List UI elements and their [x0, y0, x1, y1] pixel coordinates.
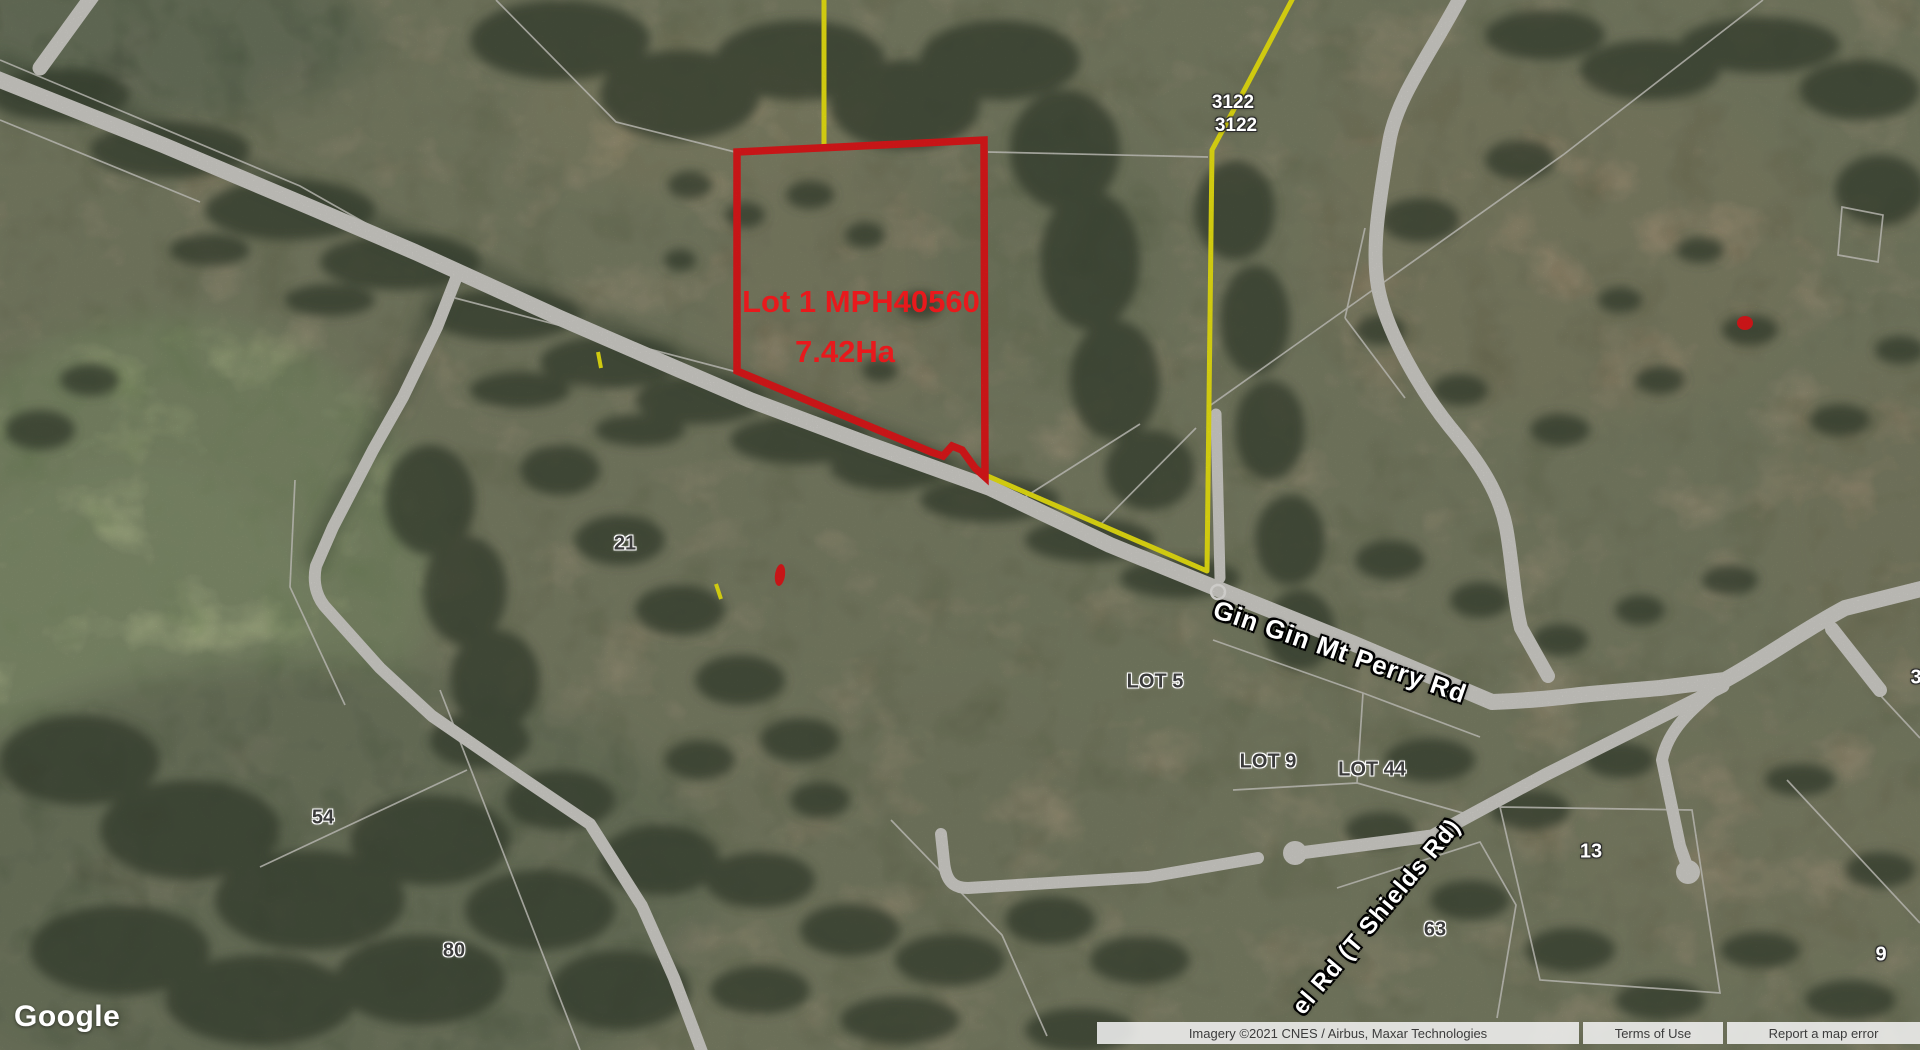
imagery-credit: Imagery ©2021 CNES / Airbus, Maxar Techn…	[1097, 1022, 1579, 1044]
terms-of-use-link[interactable]: Terms of Use	[1583, 1022, 1723, 1044]
map-viewport[interactable]: 3122 3122 Lot 1 MPH40560 7.42Ha 21 LOT 5…	[0, 0, 1920, 1050]
report-map-error-link[interactable]: Report a map error	[1727, 1022, 1920, 1044]
photo-grain	[0, 0, 1920, 1050]
google-logo[interactable]: Google	[14, 1000, 120, 1034]
satellite-imagery-canvas[interactable]	[0, 0, 1920, 1050]
